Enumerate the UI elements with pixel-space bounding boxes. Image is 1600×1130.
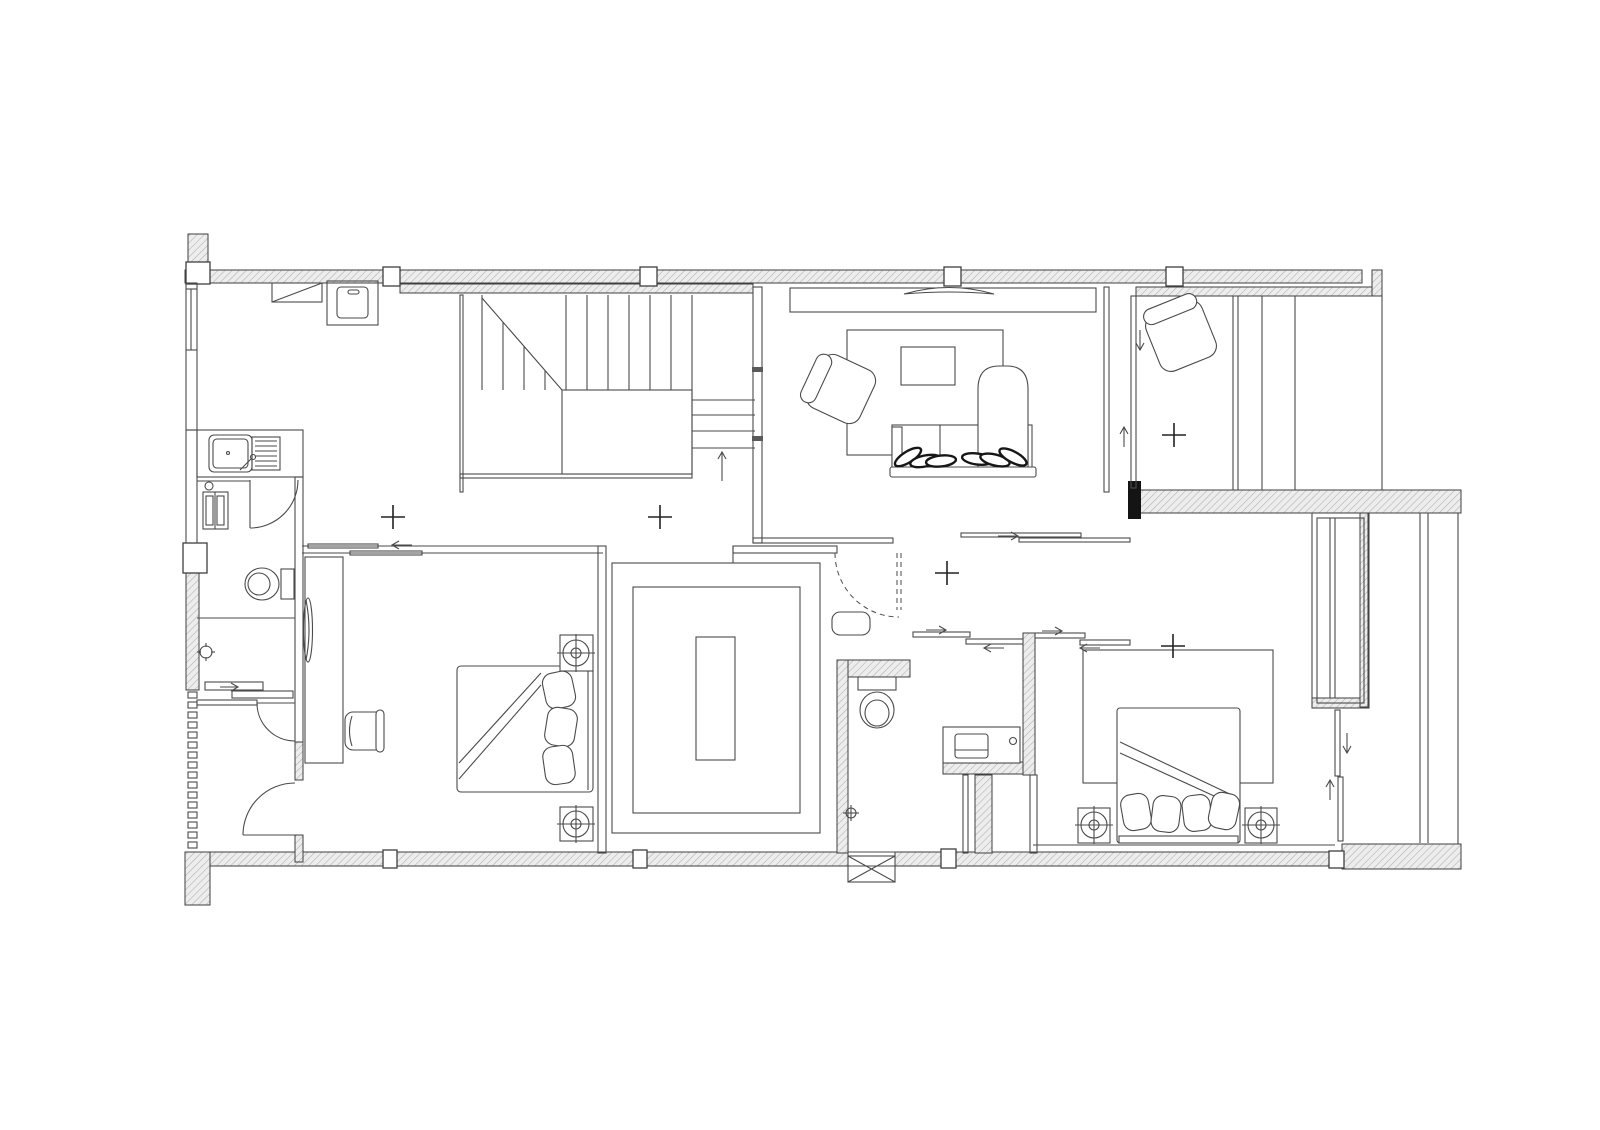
bath2-east-wall bbox=[1023, 633, 1035, 775]
vanity-desk bbox=[305, 557, 343, 763]
stair-bottom-edge bbox=[460, 474, 692, 478]
column bbox=[183, 543, 207, 573]
bottom-wall-right bbox=[1342, 844, 1461, 869]
terrace-parapet-cap bbox=[1372, 270, 1382, 296]
toilet-tank bbox=[858, 677, 896, 690]
terrace bbox=[1120, 291, 1220, 447]
living-east-glass bbox=[1104, 287, 1109, 492]
faucet-head bbox=[251, 455, 256, 460]
valve-knob bbox=[205, 482, 213, 490]
bedroom-1 bbox=[304, 541, 596, 843]
stair-up-arrow bbox=[718, 452, 726, 481]
closet-island bbox=[696, 637, 735, 760]
column bbox=[941, 849, 956, 868]
left-wall-hatch bbox=[186, 573, 199, 690]
slider-arrow bbox=[1120, 427, 1128, 447]
bottom-left-column bbox=[185, 852, 210, 905]
bath2-inner-wall bbox=[975, 775, 992, 853]
slider-panel bbox=[1338, 777, 1343, 841]
bottom-wall-west bbox=[185, 852, 848, 866]
hood-diagonal bbox=[272, 283, 322, 302]
cooktop-inner bbox=[337, 287, 368, 318]
column bbox=[633, 850, 647, 868]
pillow bbox=[542, 744, 577, 786]
slider-arrow bbox=[1042, 627, 1062, 635]
slider-panel bbox=[1335, 710, 1340, 776]
slider-arrow bbox=[1136, 330, 1144, 350]
louver-slat bbox=[188, 772, 197, 778]
slider-arrow bbox=[1326, 780, 1334, 800]
break-diagonal bbox=[482, 298, 562, 390]
shower-slider-panel bbox=[232, 691, 293, 698]
column bbox=[1329, 851, 1344, 868]
sink-inner bbox=[213, 439, 248, 468]
walk-in-closet bbox=[612, 563, 820, 833]
left-column-top bbox=[188, 234, 208, 264]
slider-panel bbox=[1019, 538, 1130, 542]
door-swing bbox=[250, 480, 298, 528]
slider-panel bbox=[1080, 640, 1130, 645]
washer-door bbox=[206, 496, 213, 525]
louver-slat bbox=[188, 812, 197, 818]
faucet bbox=[240, 458, 252, 470]
bedroom2-west-wall bbox=[1030, 775, 1037, 853]
louver-slat bbox=[188, 792, 197, 798]
louver-slat bbox=[188, 732, 197, 738]
bed1-closet-divider bbox=[598, 546, 606, 853]
slider-arrow bbox=[392, 541, 412, 549]
slider-arrow bbox=[984, 644, 1004, 652]
slider-panel bbox=[966, 639, 1023, 644]
toilet-bowl bbox=[245, 568, 279, 600]
louver-slat bbox=[188, 752, 197, 758]
louver-slat bbox=[188, 762, 197, 768]
desk-chair-back bbox=[376, 710, 384, 752]
cross-mark bbox=[935, 561, 959, 585]
closet-hall-wall bbox=[733, 546, 837, 553]
bath2-west-wall bbox=[837, 660, 848, 853]
shower-head bbox=[200, 646, 212, 658]
terrace-slider-line bbox=[1131, 296, 1136, 488]
louver-slat bbox=[188, 832, 197, 838]
sofa-front-rail bbox=[890, 467, 1036, 477]
pillow bbox=[543, 706, 579, 748]
stair-beam bbox=[400, 284, 753, 293]
slider-arrow bbox=[1343, 733, 1351, 753]
louver-slat bbox=[188, 712, 197, 718]
wardrobe-inner bbox=[1317, 518, 1364, 703]
door-swing bbox=[257, 703, 295, 741]
toilet-tank bbox=[281, 569, 294, 599]
headboard bbox=[1119, 836, 1238, 843]
stair-hall-west-wall bbox=[460, 295, 463, 492]
pouf bbox=[832, 612, 870, 635]
shower2-glass bbox=[963, 775, 968, 853]
bath1-east-wall bbox=[295, 477, 303, 742]
cross-mark bbox=[1162, 423, 1186, 447]
bathroom-left bbox=[197, 568, 294, 698]
living-room bbox=[790, 288, 1096, 478]
bath2-nw-stub bbox=[848, 660, 910, 677]
bedroom-2 bbox=[1035, 513, 1369, 844]
drainboard bbox=[252, 437, 280, 470]
washer-door bbox=[217, 496, 224, 525]
pillow bbox=[1181, 793, 1213, 832]
slider-panel bbox=[961, 533, 1081, 537]
vanity-south-band bbox=[943, 762, 1023, 774]
bath1-south-wall bbox=[197, 700, 257, 705]
sink-outer bbox=[209, 435, 252, 472]
cross-mark bbox=[1161, 634, 1185, 658]
column bbox=[383, 267, 400, 286]
louver-slat bbox=[188, 722, 197, 728]
terrace-parapet bbox=[1136, 287, 1382, 296]
cross-mark bbox=[381, 505, 405, 529]
door-swing bbox=[243, 783, 295, 835]
coffee-table bbox=[901, 347, 955, 385]
kitchen bbox=[197, 281, 378, 529]
pillow bbox=[1150, 794, 1182, 833]
column bbox=[383, 850, 397, 868]
floor-plan-page bbox=[0, 0, 1600, 1130]
column bbox=[1166, 267, 1183, 286]
hallway bbox=[832, 532, 1130, 635]
stairs bbox=[482, 295, 755, 481]
mullion bbox=[752, 436, 763, 441]
louver-slat bbox=[188, 842, 197, 848]
louver-slat bbox=[188, 782, 197, 788]
column bbox=[944, 267, 961, 286]
bottom-wall-east bbox=[895, 852, 1342, 866]
bath1-wall-stub-b bbox=[295, 835, 303, 862]
left-wall-lower bbox=[186, 430, 197, 543]
slider-panel bbox=[1035, 633, 1085, 638]
louver-slat bbox=[188, 702, 197, 708]
louver-slat bbox=[188, 692, 197, 698]
louver-slat bbox=[188, 742, 197, 748]
survey-marks bbox=[381, 423, 1186, 658]
terrace-south-wall bbox=[1132, 490, 1461, 513]
slider-arrow bbox=[926, 626, 946, 634]
walls-hatched bbox=[185, 234, 1461, 905]
black-column bbox=[1128, 481, 1141, 519]
bath1-wall-stub-a bbox=[295, 742, 303, 780]
closet-door-swing bbox=[835, 553, 899, 617]
floor-plan-svg bbox=[0, 0, 1600, 1130]
column bbox=[186, 262, 210, 284]
cooktop-control bbox=[348, 290, 359, 294]
living-south-wall bbox=[753, 538, 893, 543]
louver-slat bbox=[188, 822, 197, 828]
column bbox=[640, 267, 657, 286]
mullion bbox=[752, 367, 763, 372]
stair-landing bbox=[562, 390, 692, 474]
louver-slat bbox=[188, 802, 197, 808]
sink-drain bbox=[227, 452, 230, 455]
cross-mark bbox=[648, 505, 672, 529]
